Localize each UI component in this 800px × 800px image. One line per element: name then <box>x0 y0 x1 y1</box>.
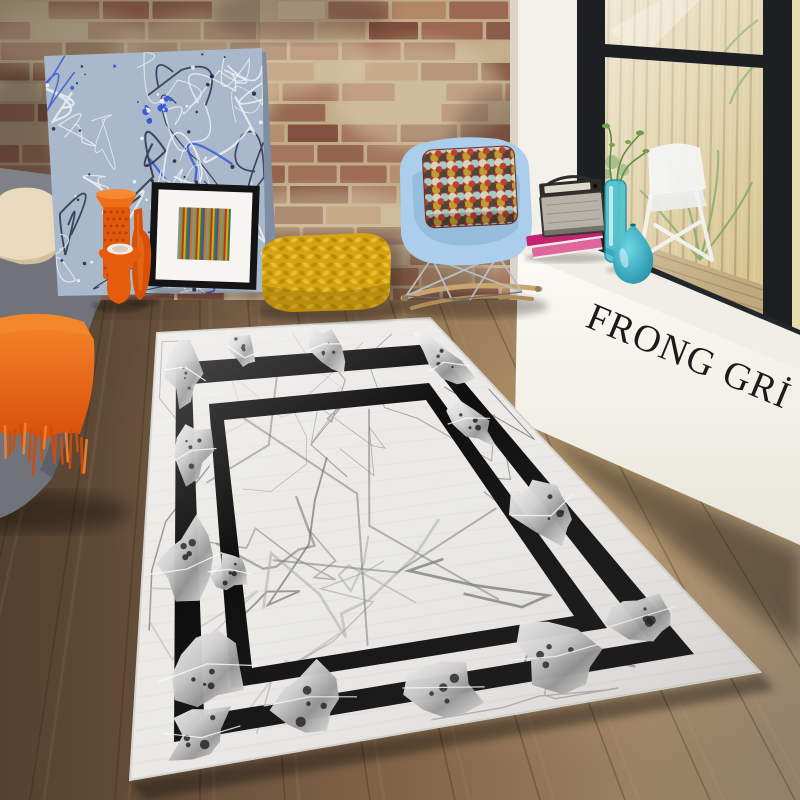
framed-art <box>148 182 260 300</box>
window-stile-right <box>763 0 792 331</box>
chair-pillow <box>422 146 518 229</box>
sofa-cushion <box>0 188 60 265</box>
vase-shadow2 <box>128 298 160 306</box>
radio <box>539 174 606 236</box>
window-sliver <box>792 0 800 340</box>
room-scene: FRONG GRİ <box>0 0 800 800</box>
stripe-print <box>177 207 231 261</box>
product-photo-stage: FRONG GRİ <box>0 0 800 800</box>
knitted-pouf <box>256 233 400 322</box>
